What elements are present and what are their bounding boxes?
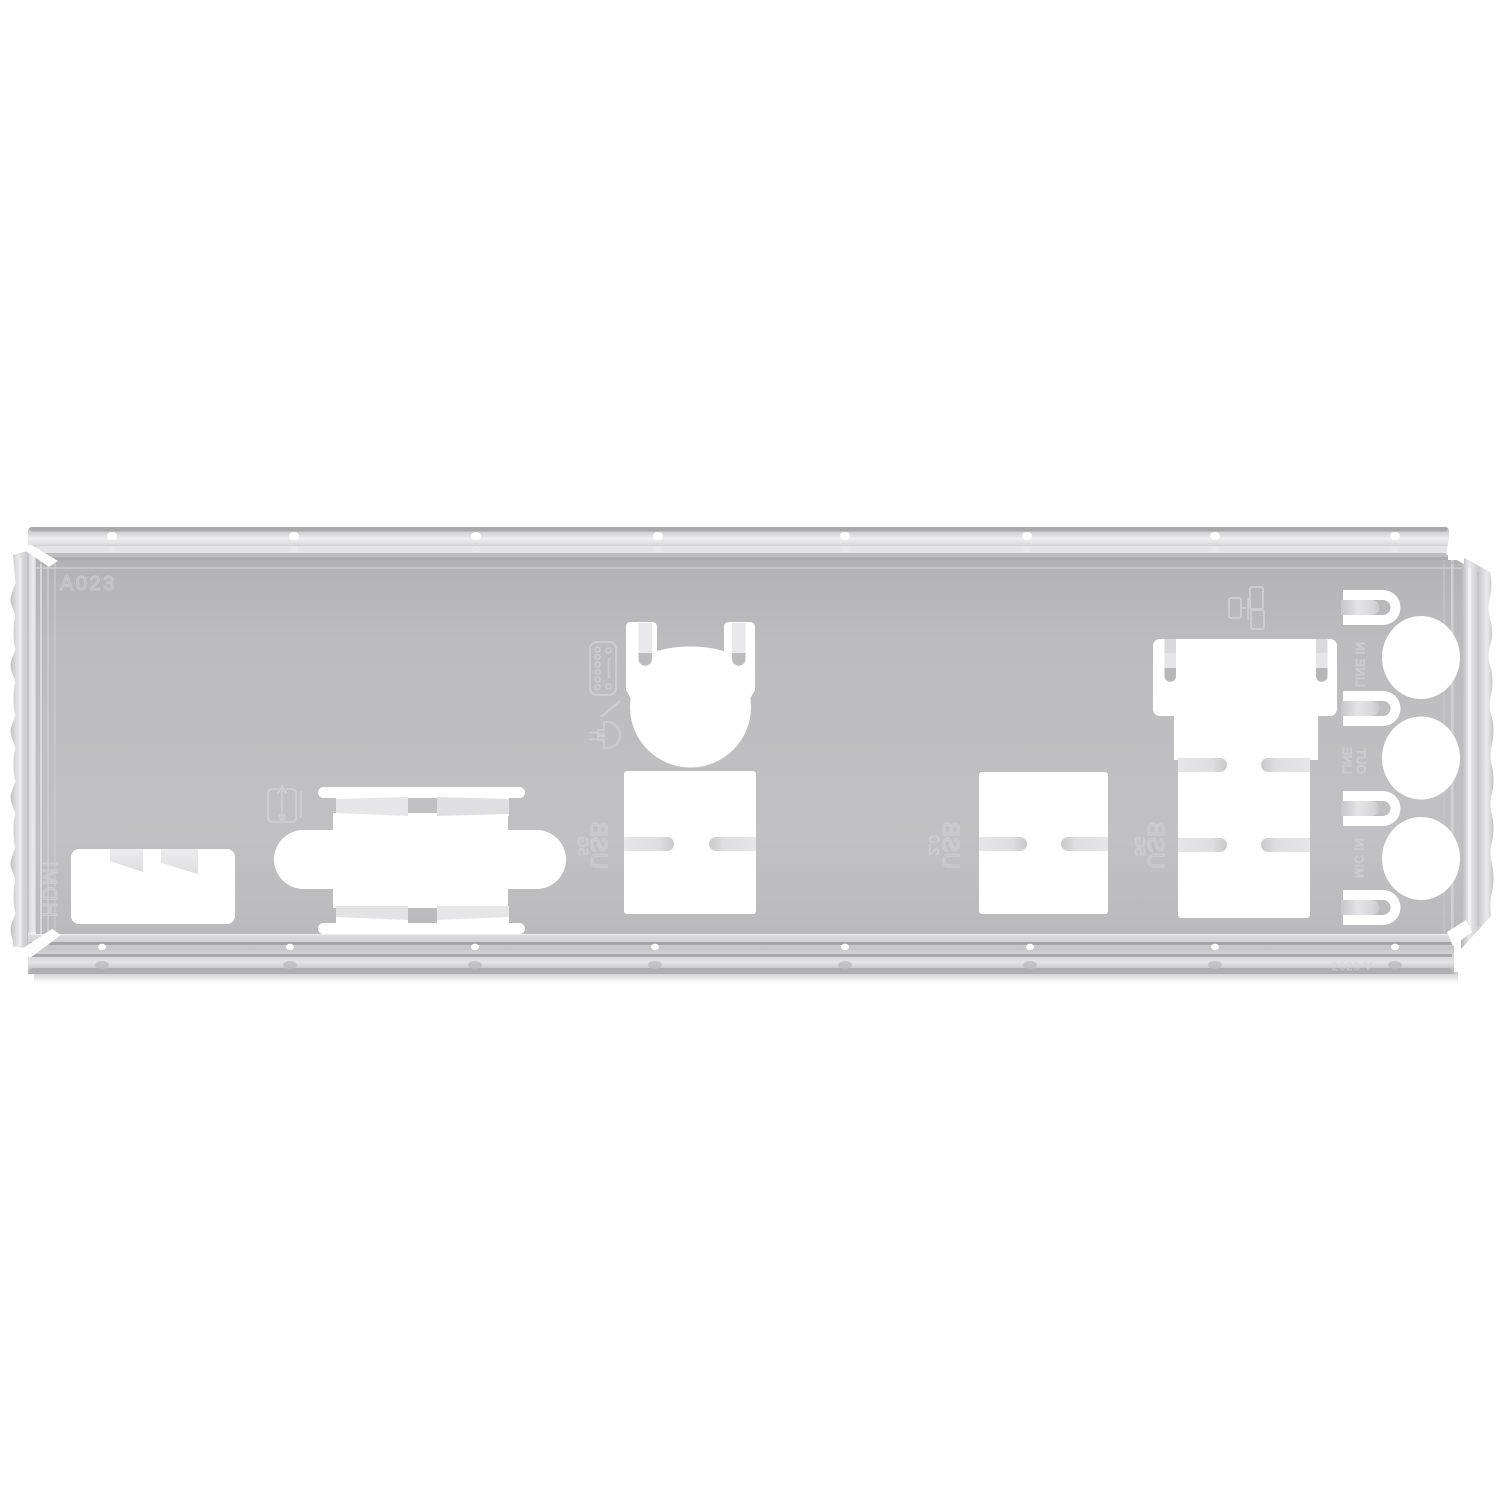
svg-text:USB: USB xyxy=(1143,822,1169,869)
svg-text:A023: A023 xyxy=(60,573,117,595)
svg-text:OUT: OUT xyxy=(1354,748,1368,774)
svg-text:MIC IN: MIC IN xyxy=(1352,838,1366,878)
svg-text:USB: USB xyxy=(938,822,964,869)
svg-text:HDMI: HDMI xyxy=(38,860,60,917)
svg-text:USB: USB xyxy=(586,822,612,869)
svg-text:LINE: LINE xyxy=(1340,747,1354,774)
svg-text:LINE IN: LINE IN xyxy=(1353,641,1367,687)
svg-text:2023 V: 2023 V xyxy=(1332,961,1373,973)
